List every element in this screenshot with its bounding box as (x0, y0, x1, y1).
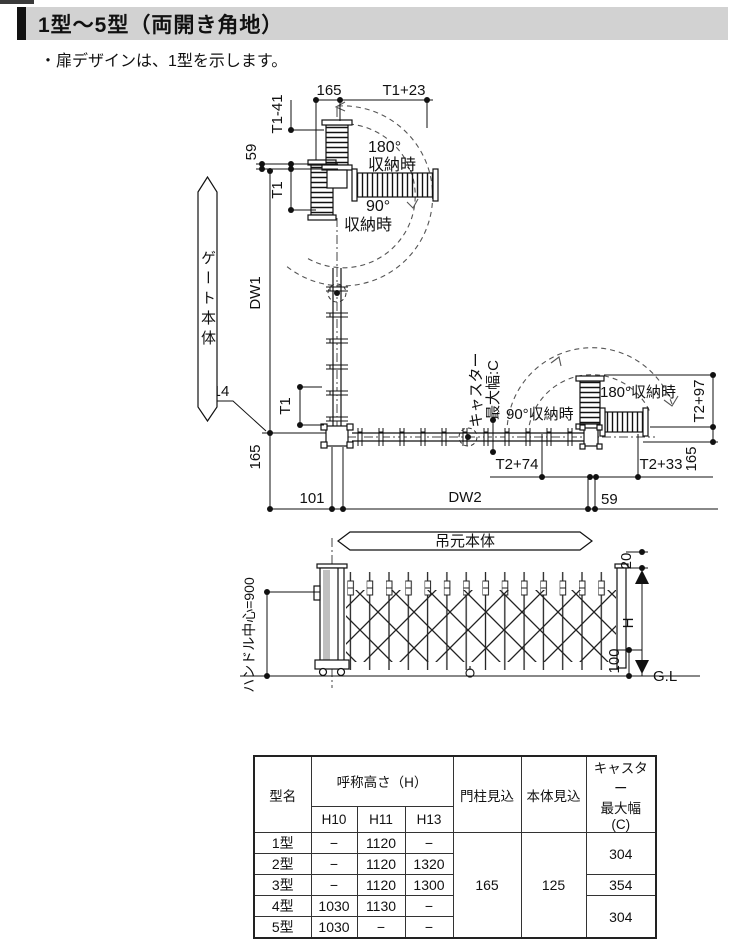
hanging-body-banner-label: 吊元本体 (435, 533, 495, 550)
table-cell: 1030 (311, 917, 357, 939)
dim-20: 20 (618, 553, 635, 570)
dim-59-top: 59 (243, 144, 260, 161)
spec-table: 型名 呼称高さ（H） 門柱見込 本体見込 キャスター 最大幅 (C) H10 H… (253, 755, 657, 939)
label-gl: G.L (653, 668, 677, 685)
table-cell: 4型 (254, 896, 311, 917)
header-caster: キャスター 最大幅 (C) (586, 756, 656, 833)
dim-t1plus23: T1+23 (383, 82, 426, 99)
dim-t2plus97: T2+97 (691, 380, 708, 423)
plan-dimension-lines (209, 100, 718, 509)
table-cell-body: 125 (521, 833, 586, 939)
dim-101: 101 (299, 490, 324, 507)
horizontal-gate (352, 428, 588, 446)
table-cell: 1030 (311, 896, 357, 917)
dim-59-bottom: 59 (601, 491, 618, 508)
table-cell: 1120 (357, 854, 405, 875)
dim-dw1: DW1 (247, 276, 264, 309)
table-cell: 1300 (405, 875, 453, 896)
elevation-view: 吊元本体 (240, 532, 700, 693)
header-model: 型名 (254, 756, 311, 833)
label-handle-center: ハンドル中心=900 (241, 577, 257, 693)
header-caster-line3: (C) (589, 817, 654, 832)
dim-165-right: 165 (683, 446, 700, 471)
label-stored-90-right: 90°収納時 (506, 406, 574, 423)
dim-t1minus41: T1-41 (269, 94, 286, 133)
header-caster-line1: キャスター (589, 757, 654, 797)
table-cell: 1320 (405, 854, 453, 875)
dim-165-left: 165 (247, 444, 264, 469)
table-cell: 1型 (254, 833, 311, 854)
label-180deg-top: 180° (368, 139, 401, 156)
label-stored-top-1: 収納時 (368, 156, 416, 174)
table-cell: 5型 (254, 917, 311, 939)
header-height-group: 呼称高さ（H） (311, 756, 453, 806)
table-cell: 3型 (254, 875, 311, 896)
table-cell: − (311, 833, 357, 854)
table-cell-pillar: 165 (453, 833, 521, 939)
table-cell: 2型 (254, 854, 311, 875)
header-caster-line2: 最大幅 (589, 797, 654, 817)
header-h13: H13 (405, 806, 453, 832)
dim-100: 100 (606, 648, 623, 673)
label-stored-180-right: 180°収納時 (600, 384, 676, 401)
label-caster-line2: 最大幅:C (485, 360, 502, 420)
dim-t2plus33: T2+33 (640, 456, 683, 473)
dim-t2plus74: T2+74 (496, 456, 539, 473)
header-h11: H11 (357, 806, 405, 832)
gate-body-banner-label: ゲート本体 (197, 182, 218, 418)
dim-165-top: 165 (316, 82, 341, 99)
table-cell: 1120 (357, 833, 405, 854)
dim-h: H (620, 618, 637, 629)
table-cell-caster: 304 (586, 896, 656, 939)
table-cell-caster: 304 (586, 833, 656, 875)
table-cell-caster: 354 (586, 875, 656, 896)
dim-t1-upper: T1 (269, 181, 286, 199)
dim-dw2: DW2 (448, 489, 481, 506)
dim-t1-lower: T1 (277, 397, 294, 415)
header-body: 本体見込 (521, 756, 586, 833)
table-cell: 1130 (357, 896, 405, 917)
vertical-gate (326, 268, 348, 426)
header-pillar: 門柱見込 (453, 756, 521, 833)
corner-post (321, 424, 353, 448)
elevation-lattice (345, 572, 616, 677)
table-cell: − (311, 854, 357, 875)
plan-view: 165 T1+23 T1-41 59 T1 DW1 T1 14 165 101 … (198, 82, 718, 512)
table-cell: − (405, 833, 453, 854)
header-h10: H10 (311, 806, 357, 832)
table-cell: 1120 (357, 875, 405, 896)
label-caster-line1: キャスター (468, 352, 485, 427)
table-cell: − (405, 896, 453, 917)
label-stored-top-2: 収納時 (344, 216, 392, 234)
table-cell: − (357, 917, 405, 939)
table-cell: − (405, 917, 453, 939)
elevation-post (314, 564, 349, 676)
label-90deg-top: 90° (366, 198, 390, 215)
table-cell: − (311, 875, 357, 896)
